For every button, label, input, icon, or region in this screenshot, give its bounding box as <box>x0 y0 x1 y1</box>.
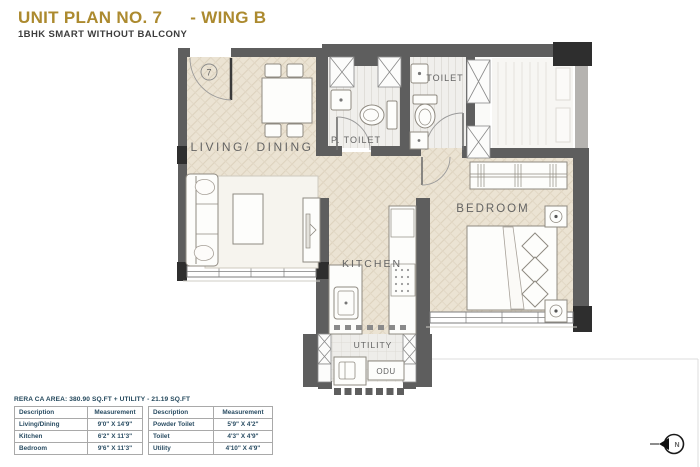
utility-fixtures <box>334 357 404 395</box>
bed <box>467 226 557 310</box>
column-header-description: Description <box>15 407 88 419</box>
louver-x-icon <box>318 334 331 382</box>
wc-icon <box>413 95 437 128</box>
washing-machine-icon <box>334 357 366 385</box>
column-header-measurement: Measurement <box>88 407 143 419</box>
column-header-description: Description <box>149 407 214 419</box>
kitchen-sink-icon <box>334 287 358 319</box>
room-size-cell: 6'2" X 11'3" <box>88 431 143 443</box>
lamp-icon <box>554 309 557 312</box>
table-row: Bedroom 9'6" X 11'3" <box>15 443 143 455</box>
nightstand-bottom <box>545 300 567 322</box>
appliance <box>391 209 414 237</box>
wardrobe <box>470 162 567 189</box>
table-row: Toilet 4'3" X 4'9" <box>149 431 273 443</box>
cushion <box>194 245 213 260</box>
chair <box>265 64 281 77</box>
room-size-cell: 4'10" X 4'9" <box>214 443 273 455</box>
compass-icon: N <box>650 435 684 454</box>
room-name-cell: Living/Dining <box>15 419 88 431</box>
kitchen-label: KITCHEN <box>342 258 402 270</box>
table-row: Utility 4'10" X 4'9" <box>149 443 273 455</box>
sink-icon <box>331 90 351 110</box>
utility-label: UTILITY <box>354 340 393 350</box>
vent-squares <box>334 388 404 395</box>
room-size-cell: 9'0" X 14'9" <box>88 419 143 431</box>
cushion <box>195 179 214 194</box>
shower-icon <box>410 132 428 149</box>
room-name-cell: Utility <box>149 443 214 455</box>
room-size-cell: 9'6" X 11'3" <box>88 443 143 455</box>
toilet-label: TOILET <box>426 73 463 83</box>
sofa <box>186 174 218 266</box>
coffee-table <box>233 194 263 244</box>
bedroom-label: BEDROOM <box>456 203 529 215</box>
table-row: Kitchen 6'2" X 11'3" <box>15 431 143 443</box>
louver-x-icon <box>403 334 416 382</box>
chair <box>287 124 303 137</box>
room-size-cell: 5'9" X 4'2" <box>214 419 273 431</box>
room-name-cell: Bedroom <box>15 443 88 455</box>
p-toilet-label: P. TOILET <box>331 135 381 145</box>
duct-x-icon <box>467 126 490 158</box>
duct-x-icon <box>330 57 354 87</box>
unit-number: 7 <box>206 68 211 78</box>
measurement-tables: RERA CA AREA: 380.90 SQ.FT + UTILITY - 2… <box>14 396 273 455</box>
duct-x-icon <box>467 60 490 103</box>
room-name-cell: Powder Toilet <box>149 419 214 431</box>
north-arrow-icon <box>659 438 669 450</box>
column-header-measurement: Measurement <box>214 407 273 419</box>
room-size-cell: 4'3" X 4'9" <box>214 431 273 443</box>
living-dining-label: LIVING/ DINING <box>190 140 313 154</box>
room-name-cell: Kitchen <box>15 431 88 443</box>
chair <box>265 124 281 137</box>
room-name-cell: Toilet <box>149 431 214 443</box>
lamp-icon <box>554 215 557 218</box>
area-note: RERA CA AREA: 380.90 SQ.FT + UTILITY - 2… <box>14 396 273 403</box>
duct-x-icon <box>378 57 401 87</box>
measurement-table-left: Description Measurement Living/Dining 9'… <box>14 406 143 455</box>
chair <box>287 64 303 77</box>
odu-label: ODU <box>376 367 395 376</box>
dining-table <box>262 78 312 123</box>
tv-unit <box>303 198 320 262</box>
nightstand-top <box>545 206 567 227</box>
measurement-table-right: Description Measurement Powder Toilet 5'… <box>148 406 273 455</box>
compass-north-label: N <box>674 442 679 449</box>
table-row: Powder Toilet 5'9" X 4'2" <box>149 419 273 431</box>
bedroom-furniture <box>467 162 567 322</box>
table-row: Living/Dining 9'0" X 14'9" <box>15 419 143 431</box>
page-edge-lines <box>432 359 698 467</box>
